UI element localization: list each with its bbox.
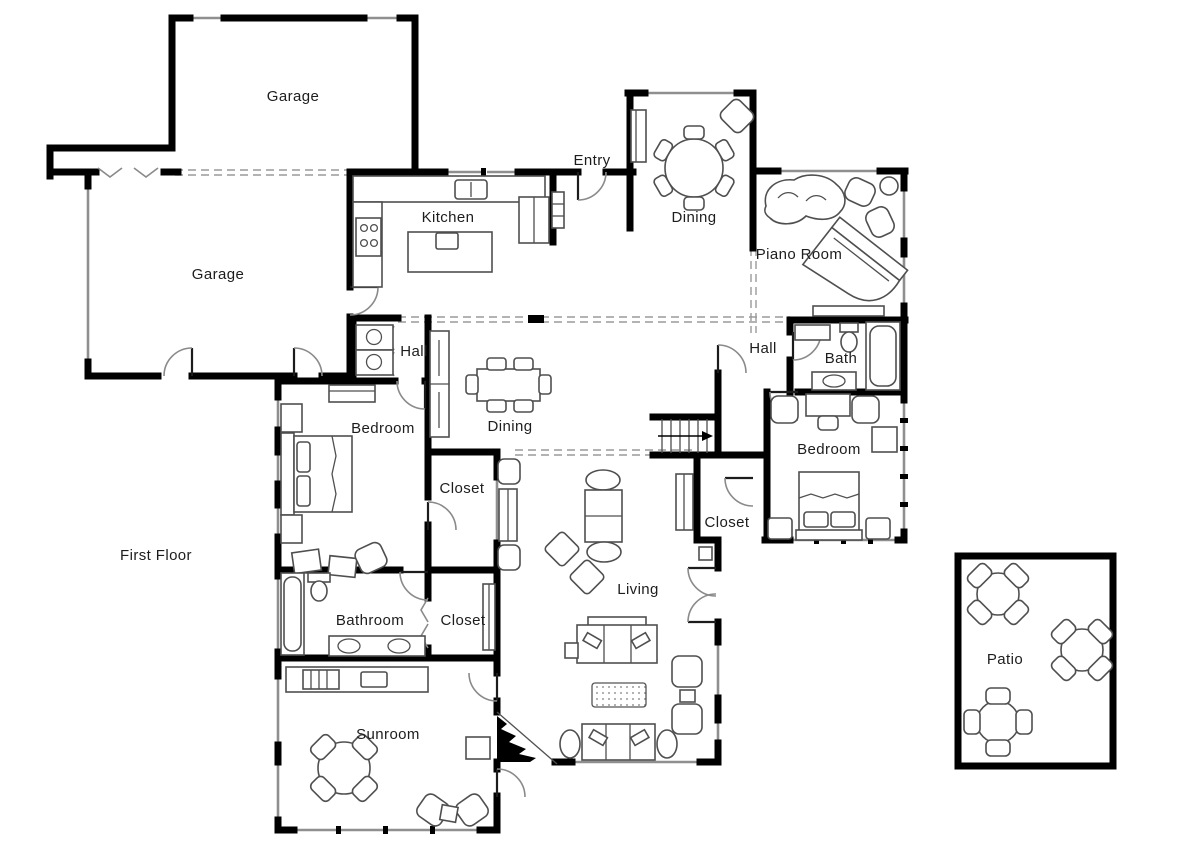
- curved-sofa: [765, 175, 845, 224]
- armchair: [672, 704, 702, 734]
- side-table: [565, 643, 578, 658]
- tub-chair: [863, 204, 897, 240]
- room-label-dining-breakfast: Dining: [672, 209, 717, 226]
- oval-table: [657, 730, 677, 758]
- nightstand: [866, 518, 890, 539]
- dining-table: [477, 369, 540, 401]
- toilet: [311, 581, 327, 601]
- washer: [356, 325, 393, 350]
- small-table: [699, 547, 712, 560]
- tub-chair: [842, 175, 878, 209]
- room-label-bedroom-left: Bedroom: [351, 420, 415, 437]
- room-label-garage-upper: Garage: [267, 88, 319, 105]
- nightstand: [768, 518, 792, 539]
- bath-cabinet: [795, 325, 830, 340]
- accent-chair: [544, 531, 581, 568]
- room-label-garage-lower: Garage: [192, 266, 244, 283]
- armchair: [498, 545, 520, 570]
- dryer: [356, 350, 393, 375]
- toilet: [841, 332, 857, 352]
- stove: [356, 218, 381, 256]
- dresser: [872, 427, 897, 452]
- window-bench: [631, 110, 646, 162]
- oval-table: [587, 542, 621, 562]
- room-label-hall-left: Hall: [400, 343, 427, 360]
- room-label-closet-bottom: Closet: [441, 612, 486, 629]
- oval-table: [560, 730, 580, 758]
- floor-plan-page: Garage Garage Kitchen Entry Dining Piano…: [0, 0, 1200, 849]
- bedroom-left-furniture: [281, 385, 389, 577]
- armchair: [672, 656, 702, 687]
- armchair: [498, 459, 520, 484]
- room-label-dining-formal: Dining: [488, 418, 533, 435]
- room-label-patio: Patio: [987, 651, 1023, 668]
- grand-piano: [803, 217, 908, 318]
- room-label-closet-middle: Closet: [440, 480, 485, 497]
- nightstand: [281, 404, 302, 432]
- floor-title: First Floor: [120, 547, 192, 564]
- breakfast-dining-set: [631, 97, 756, 210]
- staircase: [658, 419, 713, 453]
- room-label-closet-right: Closet: [705, 514, 750, 531]
- room-label-sunroom: Sunroom: [356, 726, 420, 743]
- desk: [806, 394, 850, 416]
- room-label-piano-room: Piano Room: [756, 246, 843, 263]
- walls: [50, 18, 1113, 830]
- accent-chair: [569, 559, 606, 596]
- room-label-bathroom: Bathroom: [336, 612, 404, 629]
- living-furniture: [498, 459, 702, 760]
- dresser: [329, 385, 375, 402]
- grill: [303, 670, 339, 689]
- patio-table: [977, 701, 1019, 743]
- tub-chair: [453, 791, 491, 828]
- bedroom-right-furniture: [768, 394, 897, 540]
- bench: [328, 556, 357, 578]
- entry-shelf: [552, 192, 564, 228]
- rug: [592, 683, 646, 707]
- laundry-units: [356, 325, 393, 375]
- room-label-kitchen: Kitchen: [422, 209, 475, 226]
- room-label-bath: Bath: [825, 350, 857, 367]
- oval-table: [586, 470, 620, 490]
- corner-fireplace: [466, 712, 557, 764]
- headboard: [281, 433, 294, 515]
- headboard: [796, 530, 862, 540]
- room-label-entry: Entry: [573, 152, 610, 169]
- round-dining-table: [665, 139, 723, 197]
- piano-bench: [813, 306, 884, 316]
- sink: [361, 672, 387, 687]
- bench: [292, 549, 322, 574]
- armchair: [771, 396, 798, 423]
- kitchen-counters: [353, 176, 564, 287]
- room-label-hall-right: Hall: [749, 340, 776, 357]
- toilet-tank: [840, 323, 858, 332]
- sunroom-furniture: [286, 667, 491, 829]
- small-table: [680, 690, 695, 702]
- room-label-bedroom-right: Bedroom: [797, 441, 861, 458]
- desk-chair: [818, 416, 838, 430]
- room-label-living: Living: [617, 581, 659, 598]
- small-table: [440, 805, 458, 823]
- side-table: [880, 177, 898, 195]
- armchair: [852, 396, 879, 423]
- floor-plan: Garage Garage Kitchen Entry Dining Piano…: [0, 0, 1200, 849]
- nightstand: [281, 515, 302, 543]
